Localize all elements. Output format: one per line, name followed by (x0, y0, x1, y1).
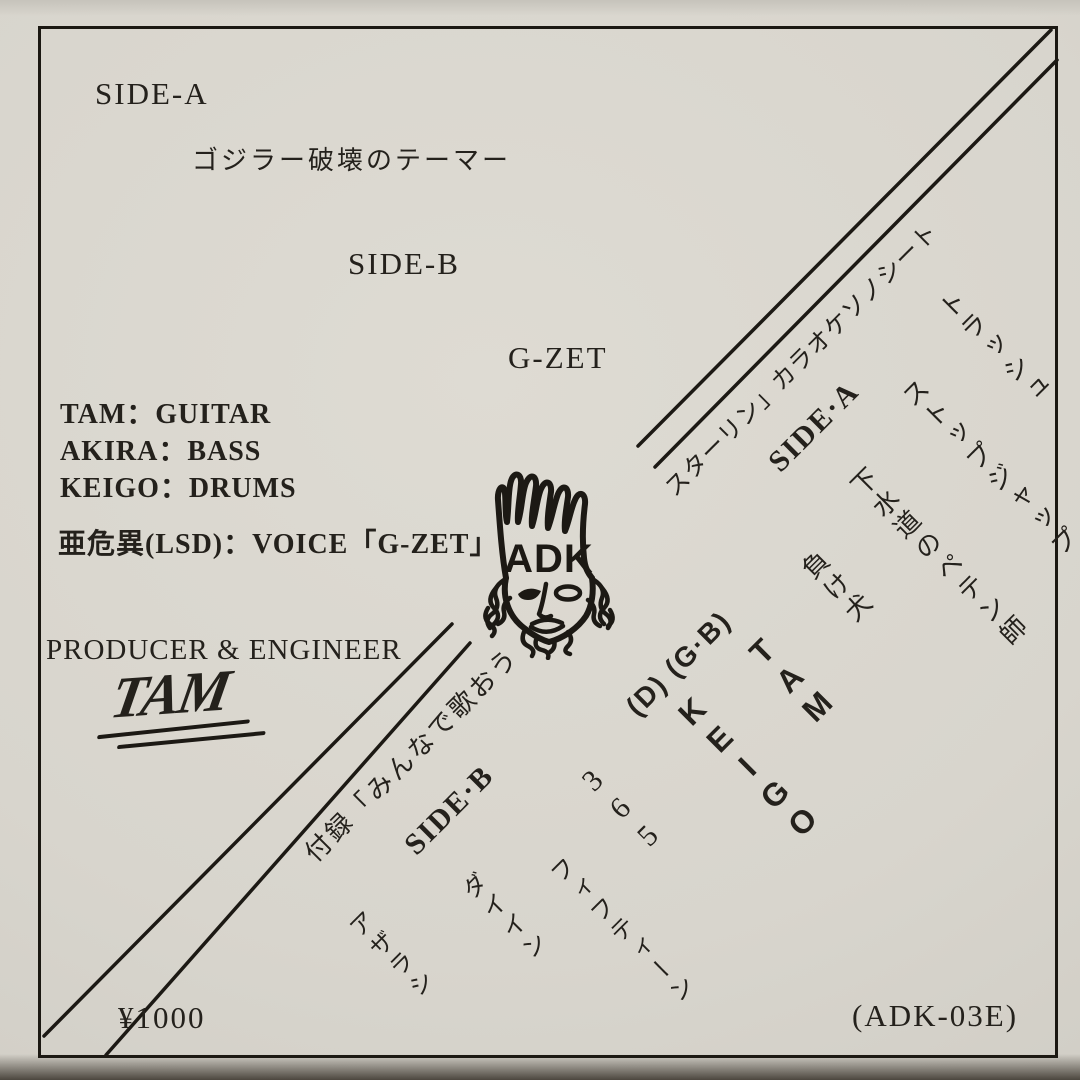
side-a-track-title: ゴジラー破壊のテーマー (192, 140, 511, 177)
price-label: ¥1000 (118, 1000, 206, 1036)
record-sleeve-photo: SIDE-A ゴジラー破壊のテーマー SIDE-B G-ZET TAM：GUIT… (0, 0, 1080, 1080)
catalog-number: (ADK-03E) (852, 998, 1018, 1034)
artist-name: G-ZET (508, 340, 608, 376)
signature-text: TAM (106, 657, 234, 731)
band-credits: TAM：GUITAR AKIRA：BASS KEIGO：DRUMS (60, 396, 297, 507)
adk-crown-logo: ADK (476, 456, 622, 660)
side-a-label: SIDE-A (95, 76, 209, 112)
voice-credit: 亜危異(LSD)：VOICE「G-ZET」 (58, 522, 498, 562)
credit-bass: AKIRA：BASS (60, 433, 297, 470)
tam-signature: TAM (106, 656, 234, 732)
credit-guitar: TAM：GUITAR (60, 396, 297, 433)
side-b-label: SIDE-B (348, 246, 460, 282)
credit-drums: KEIGO：DRUMS (60, 470, 297, 507)
adk-logo-text: ADK (504, 537, 594, 581)
